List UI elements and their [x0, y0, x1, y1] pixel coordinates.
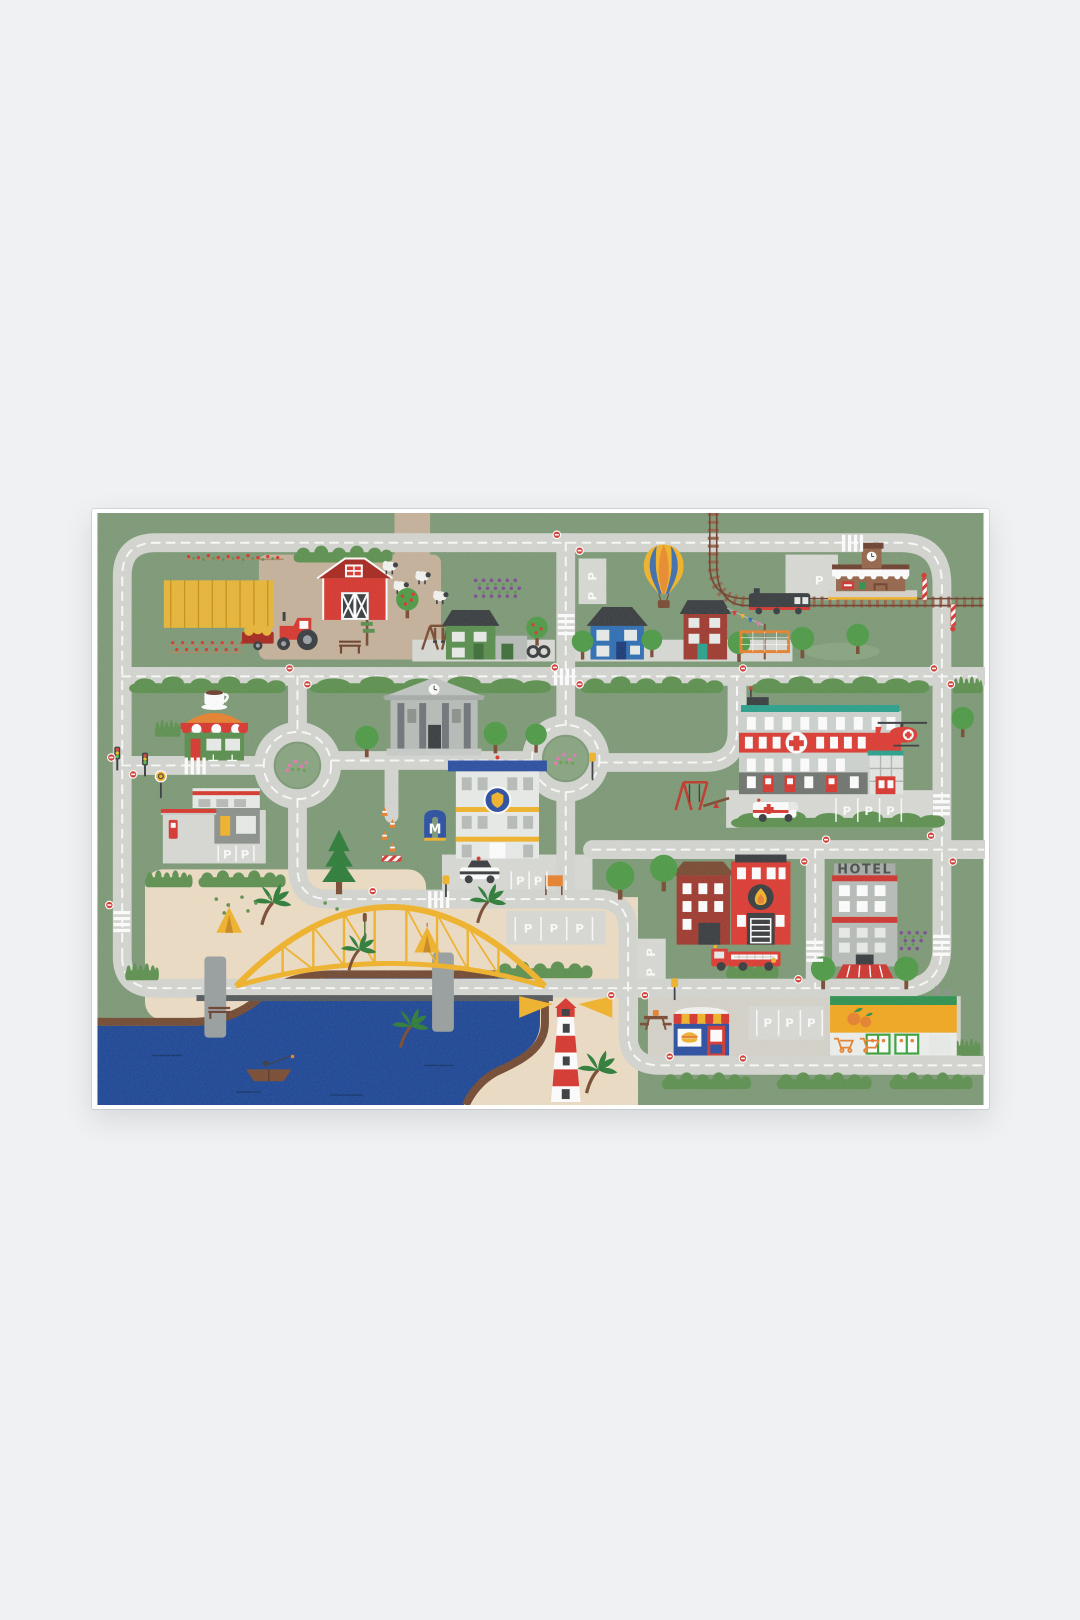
product-photo-page: { "scene": { "description": "Illustrated…: [0, 0, 1080, 1620]
play-mat: M: [92, 509, 989, 1109]
fabric-texture: [97, 513, 983, 1105]
play-mat-graphic: M: [96, 513, 985, 1105]
